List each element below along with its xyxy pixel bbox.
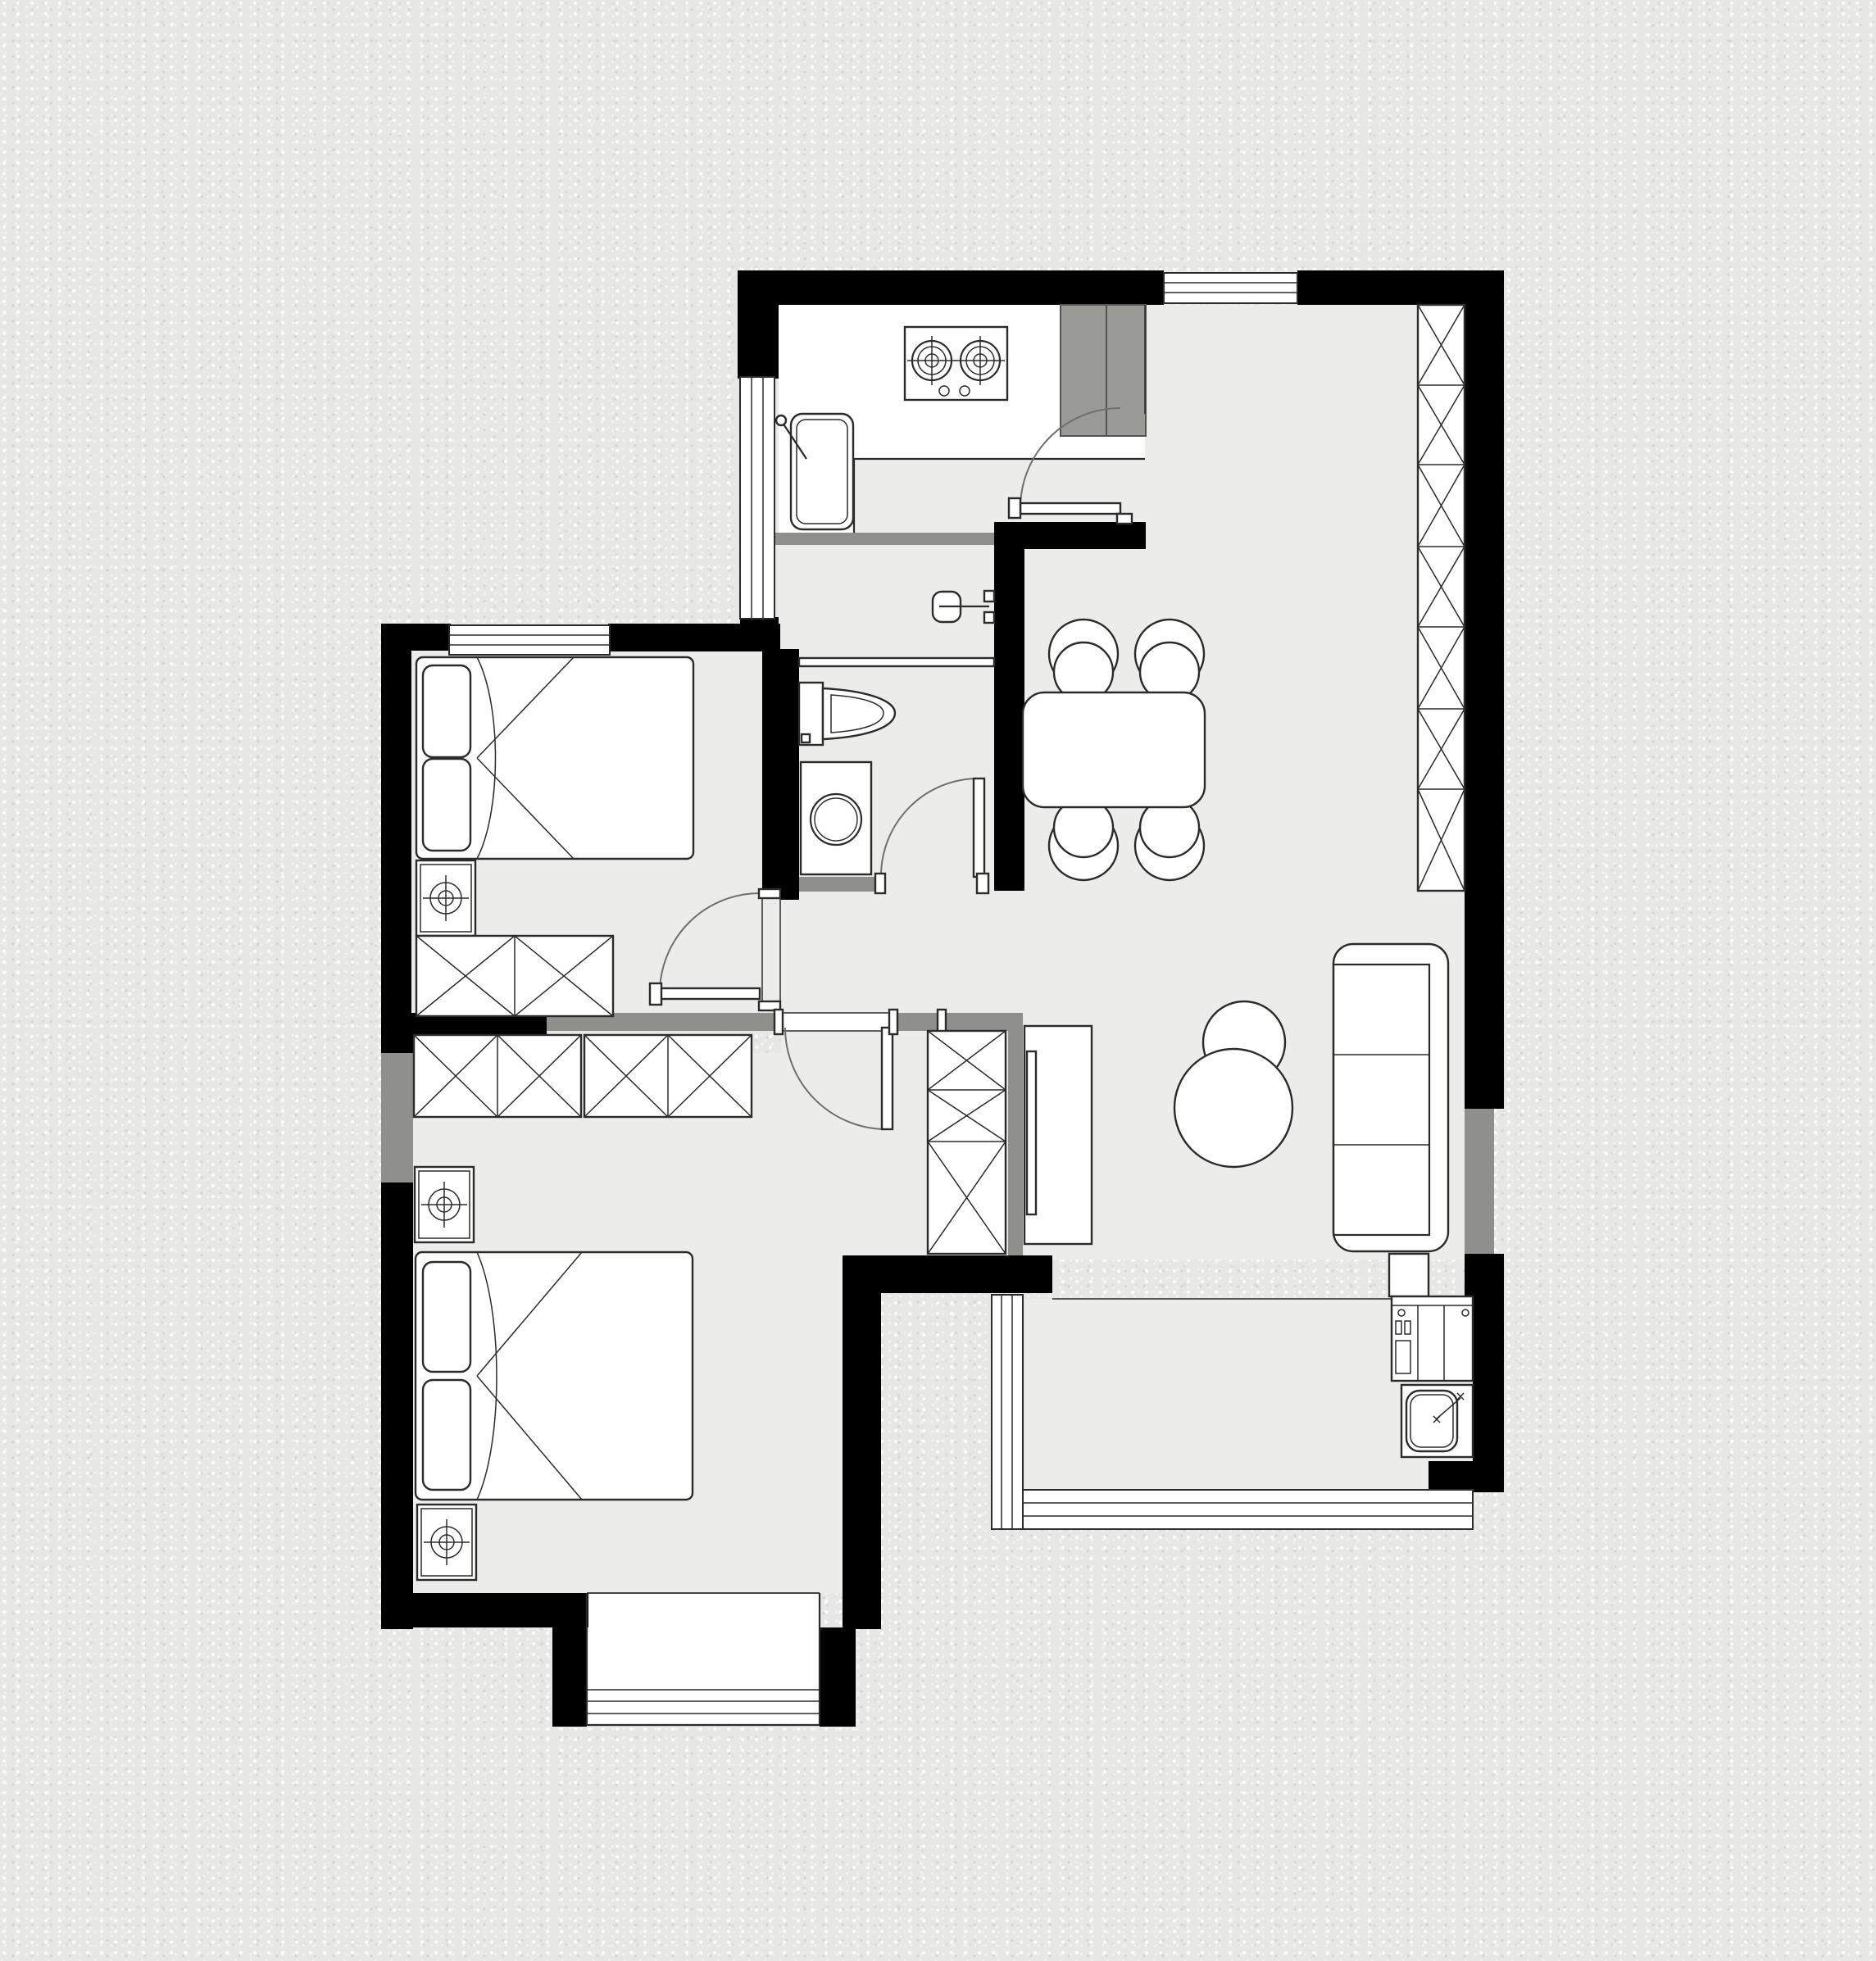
double-bed [416, 657, 693, 859]
toilet-flush-button [802, 734, 810, 742]
tv-stand [1024, 1026, 1092, 1244]
shower-screen [799, 658, 994, 666]
hallway-floor [779, 891, 1024, 1015]
window-balcony-west [992, 1295, 1023, 1529]
washing-machine [801, 762, 871, 874]
pillow [423, 1380, 470, 1490]
door-leaf [974, 778, 984, 877]
door-jamb [889, 1010, 897, 1034]
wall-balcony-se-corner [1429, 1461, 1504, 1492]
tall-storage-column [1418, 305, 1465, 891]
gas-stove [905, 327, 1007, 400]
window-balcony-south [1023, 1490, 1473, 1529]
pillow [423, 1262, 470, 1372]
wall-bay-west [552, 1627, 587, 1727]
wall-tv-partition-gray [1008, 1031, 1023, 1260]
side-table [1389, 1254, 1429, 1296]
dining-chair [1135, 798, 1204, 880]
door-jamb [774, 1010, 783, 1034]
wall-east-upper [1465, 270, 1504, 1109]
wall-bedroom-bottom-east [843, 1255, 881, 1629]
double-bed [416, 1252, 693, 1500]
wall-kitchen-south-gray [770, 533, 996, 545]
laundry-sink [1401, 1385, 1473, 1457]
wall-east-gray-segment [1465, 1109, 1494, 1254]
wall-bedroom-top-west [381, 649, 411, 1047]
balcony [1392, 1296, 1473, 1457]
door-leaf [660, 988, 760, 999]
wall-bedroom-bottom-west-gray [381, 1053, 413, 1183]
doorway-gap [762, 897, 780, 1003]
dining-table [1023, 692, 1205, 807]
sofa [1333, 944, 1448, 1251]
nightstand [415, 1167, 474, 1242]
pillow [423, 759, 470, 851]
window-bedroom-top-north [449, 625, 610, 655]
door-jamb [1009, 498, 1020, 518]
door-jamb [1117, 514, 1132, 524]
door-jamb [875, 874, 885, 893]
door-jamb [977, 874, 988, 893]
bay-window-floor [587, 1593, 820, 1725]
wall-bathroom-east [994, 549, 1024, 891]
wall-top-left [738, 270, 1164, 305]
door-jamb [759, 889, 780, 898]
door-leaf [1020, 503, 1120, 514]
wall-bedroom-bottom-south [413, 1593, 588, 1627]
window-dining-north [1164, 273, 1297, 303]
door-leaf [882, 1028, 893, 1129]
wall-living-south [843, 1255, 1052, 1293]
dining-chair [1049, 798, 1118, 880]
nightstand [416, 860, 475, 936]
shoe-cabinet-3-cell [928, 1031, 1006, 1254]
wall-bedroom-top-north-right [608, 624, 780, 651]
wall-bedroom-top-north-left [381, 624, 451, 651]
wall-kitchen-nw [738, 270, 779, 379]
fridge [1061, 305, 1146, 436]
wall-kitchen-south-black [994, 522, 1146, 549]
laundry-appliance [1392, 1296, 1473, 1381]
wardrobe-2-cell [416, 936, 613, 1016]
dining-chair [1049, 620, 1118, 701]
doorway-gap [781, 1013, 891, 1031]
wall-bay-east [820, 1627, 856, 1727]
pillow [423, 665, 470, 757]
door-jamb [650, 983, 661, 1005]
floor-plan [0, 0, 1876, 1961]
wall-bedroom-top-east [762, 649, 799, 900]
wall-east-connector [1465, 1254, 1504, 1301]
dining-floor-upper [1145, 305, 1465, 534]
window-kitchen-west [740, 377, 774, 619]
dining-chair [1135, 620, 1204, 701]
nightstand [417, 1505, 476, 1580]
wall-bedroom-bottom-west [381, 1183, 413, 1629]
tv [1027, 1051, 1036, 1214]
wall-bedroom-divider-gray-east [891, 1013, 1023, 1031]
